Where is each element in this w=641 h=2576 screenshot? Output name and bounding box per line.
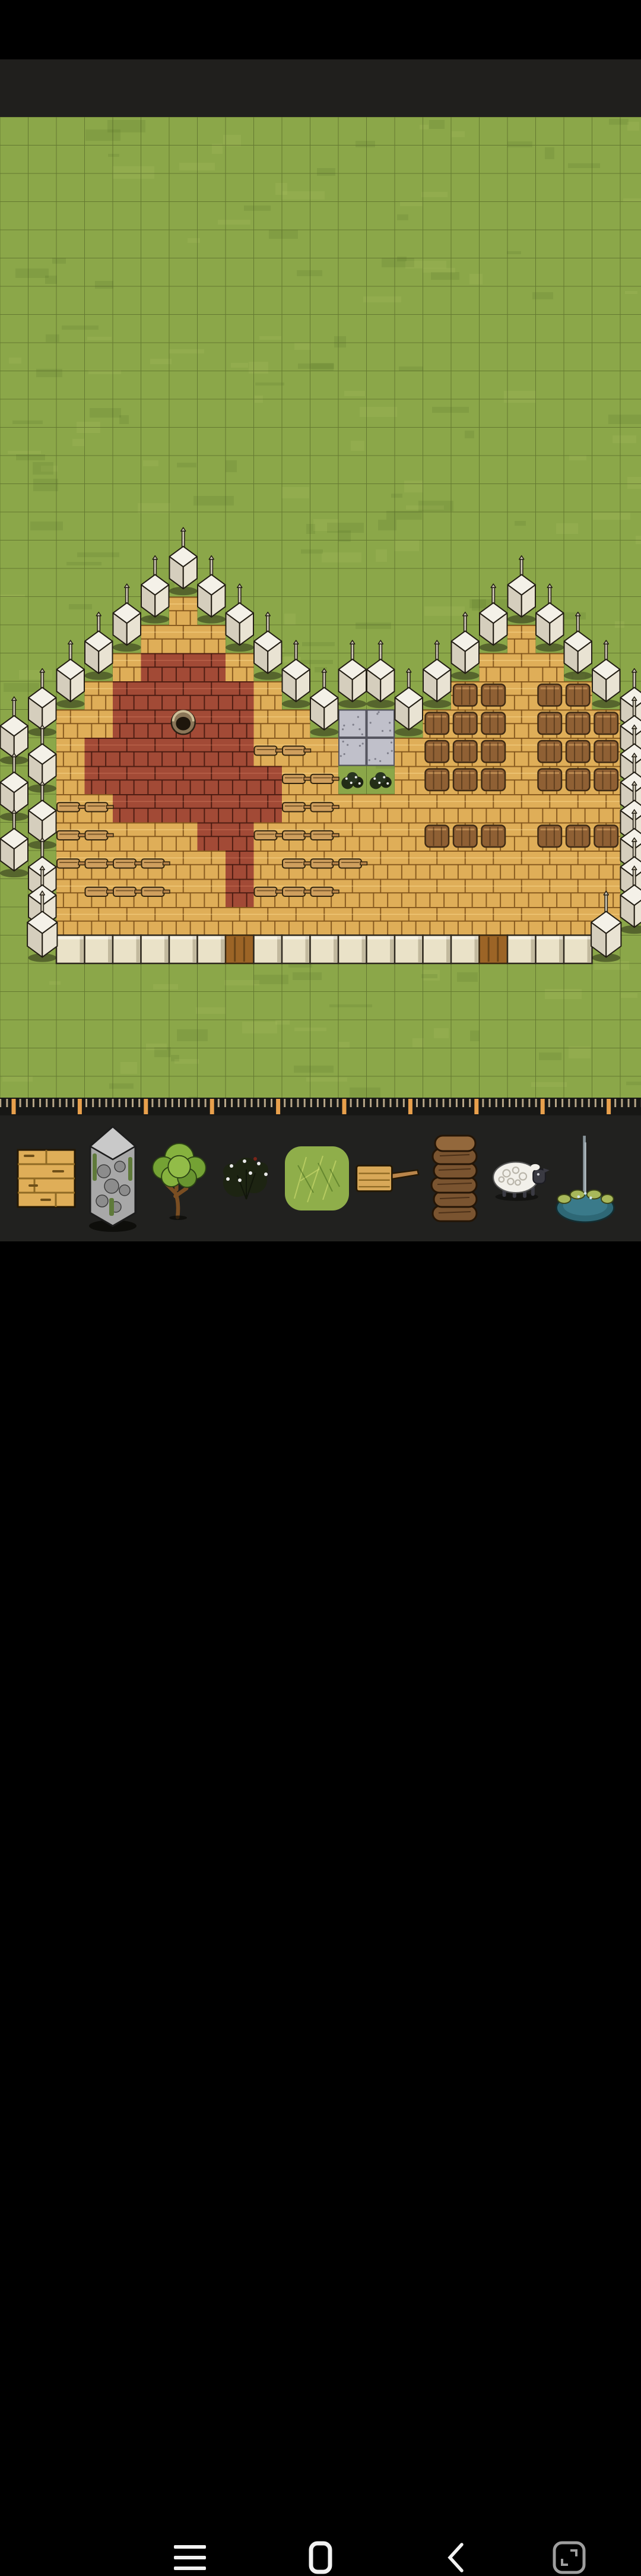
crate — [566, 769, 590, 791]
stone-pad — [367, 710, 395, 738]
home-icon — [309, 2541, 332, 2574]
screenshot-icon — [552, 2540, 586, 2575]
palette-tile-flower-bush[interactable] — [213, 1115, 280, 1241]
nav-back-button[interactable] — [437, 2539, 474, 2576]
wall-segment — [282, 935, 310, 964]
crate — [595, 826, 618, 848]
tree-glyph — [146, 1134, 212, 1223]
palette-tile-grass[interactable] — [284, 1115, 350, 1241]
wall-segment — [113, 935, 141, 964]
fountain-glyph — [552, 1128, 618, 1229]
status-bar — [0, 0, 641, 59]
crate — [453, 713, 477, 735]
crate — [453, 826, 477, 848]
nav-screenshot-button[interactable] — [551, 2539, 588, 2576]
wall-segment — [169, 935, 198, 964]
crate — [538, 741, 562, 763]
map-scene — [0, 117, 641, 1098]
crate — [538, 769, 562, 791]
crate — [566, 741, 590, 763]
crate — [482, 769, 506, 791]
wall-segment — [338, 935, 367, 964]
wall-segment — [507, 935, 536, 964]
crate — [426, 769, 449, 791]
stone-pad — [339, 710, 366, 738]
crate — [482, 684, 506, 706]
palette-tile-log-stack[interactable] — [421, 1115, 488, 1241]
menu-icon — [173, 2544, 207, 2571]
wall-segment — [310, 935, 339, 964]
palette-tile-stone-pillar[interactable] — [80, 1115, 146, 1241]
wall-segment — [141, 935, 170, 964]
wall-segment — [254, 935, 283, 964]
crate — [566, 713, 590, 735]
stone-pad — [367, 738, 395, 766]
nav-menu-button[interactable] — [172, 2539, 208, 2576]
crate — [482, 741, 506, 763]
back-icon — [447, 2542, 465, 2573]
stone-pad — [339, 738, 366, 766]
crate — [453, 769, 477, 791]
crate — [453, 684, 477, 706]
wall-segment — [85, 935, 113, 964]
nav-home-button[interactable] — [302, 2539, 339, 2576]
wall-segment — [56, 935, 85, 964]
crate — [453, 741, 477, 763]
crate — [566, 826, 590, 848]
tile-palette — [0, 1115, 641, 1241]
crate — [538, 713, 562, 735]
wall-segment — [536, 935, 564, 964]
stone-pillar-glyph — [83, 1124, 142, 1234]
crate — [595, 769, 618, 791]
toolbar: Scale: 46% STATUS-00 ver 1.1.2 beta — [0, 59, 641, 117]
crate — [566, 684, 590, 706]
grass-glyph — [284, 1145, 350, 1212]
wall-segment — [564, 935, 592, 964]
palette-tile-fountain[interactable] — [552, 1115, 618, 1241]
flower-bush-glyph — [214, 1146, 279, 1211]
android-nav-bar — [0, 1241, 641, 1354]
crate — [426, 713, 449, 735]
wood-planks-glyph — [17, 1149, 76, 1208]
well — [172, 710, 195, 734]
wooden-sign-glyph — [354, 1158, 421, 1199]
wall-segment — [423, 935, 452, 964]
crate — [538, 826, 562, 848]
wall-segment — [395, 935, 423, 964]
wall-segment — [198, 935, 226, 964]
crate — [482, 713, 506, 735]
log-stack-glyph — [428, 1131, 481, 1226]
wall-segment — [367, 935, 395, 964]
sheep-glyph — [486, 1149, 553, 1208]
palette-tile-sheep[interactable] — [486, 1115, 553, 1241]
map-canvas[interactable] — [0, 117, 641, 1098]
ruler-ticks — [0, 1098, 641, 1115]
palette-tile-tree[interactable] — [146, 1115, 212, 1241]
palette-tile-wooden-sign[interactable] — [354, 1115, 421, 1241]
crate — [595, 741, 618, 763]
crate — [426, 826, 449, 848]
crate — [595, 713, 618, 735]
crate — [482, 826, 506, 848]
wall-segment — [451, 935, 480, 964]
crate — [538, 684, 562, 706]
crate — [426, 741, 449, 763]
horizontal-ruler — [0, 1098, 641, 1115]
wooden-door — [480, 935, 508, 964]
wooden-door — [226, 935, 254, 964]
palette-tile-wood-planks[interactable] — [13, 1115, 80, 1241]
